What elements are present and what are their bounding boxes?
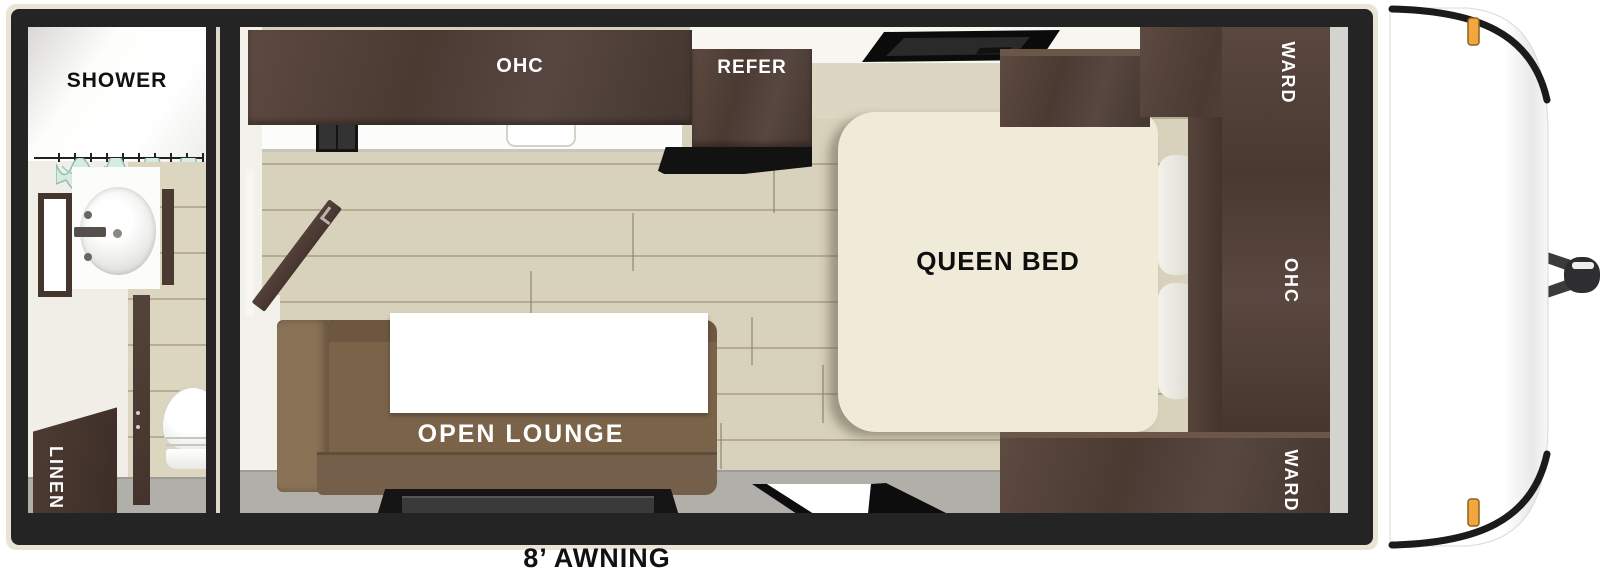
faucet-knob-top [84,211,92,219]
door-hardware-dot2 [136,425,140,429]
shower-stall [28,27,206,161]
headboard-cabinet [1188,115,1224,445]
marker-light-top [1468,18,1479,45]
plank-seam [720,423,722,469]
shower-label: SHOWER [42,69,192,93]
toilet-seat-line2 [166,444,206,446]
entry-step-tread [402,496,654,513]
wardrobe-top-label: WARD [1278,27,1298,133]
cabinet-end-panel [1330,27,1348,513]
mirror [38,193,72,297]
linen-label: LINEN [46,428,66,513]
awning-label: 8’ AWNING [437,543,757,574]
burner [338,124,355,149]
plank-seam [822,365,824,423]
toilet-base [166,449,206,469]
entry-door [740,473,960,513]
burner [319,124,336,149]
bedroom-ohc-label: OHC [1281,221,1301,341]
plank-seam [773,167,775,213]
kitchen-ohc-label: OHC [470,55,570,78]
toilet [162,387,206,471]
main-area: OPEN LOUNGE OHC REFER [240,27,1348,513]
nightstand-top [1000,49,1150,127]
cooktop [316,121,358,152]
faucet [74,227,106,237]
plank-seam [530,271,532,319]
toilet-lid [162,387,206,451]
front-cap [1380,0,1600,574]
door-jamb [246,169,254,315]
open-lounge-label: OPEN LOUNGE [371,420,671,449]
bathroom-door-panel [133,295,150,505]
wall-joint-line [216,27,220,513]
queen-bed: QUEEN BED [838,112,1158,432]
refer-label: REFER [692,57,812,79]
lounge-table [390,313,708,413]
toilet-seat-line [166,437,206,439]
sofa-seat-front [317,452,717,495]
plank-seam [751,317,753,365]
sink-drain [113,229,122,238]
faucet-knob-bottom [84,253,92,261]
vanity [72,167,160,289]
queen-bed-label: QUEEN BED [838,246,1158,277]
entry-step [376,489,680,513]
rv-floorplan: SHOWER [0,0,1600,574]
marker-light-bottom [1468,499,1479,526]
bathroom: SHOWER [28,27,206,513]
vanity-side-panel [162,189,174,285]
plank-seam [632,213,634,271]
door-hardware-dot [136,411,140,415]
wardrobe-bottom-label: WARD [1281,421,1301,513]
